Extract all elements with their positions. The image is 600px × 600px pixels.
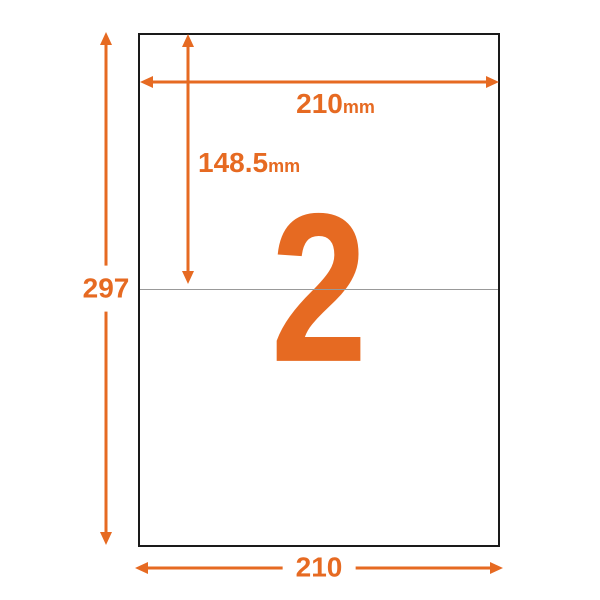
dim-bottom-width-label: 210 (283, 553, 356, 584)
dim-value: 297 (83, 272, 130, 303)
diagram-canvas: 2 297 210mm 148.5mm 210 (0, 0, 600, 600)
arrowhead-left-icon (140, 76, 153, 88)
arrowhead-down-icon (182, 271, 194, 284)
dim-value: 148.5 (198, 147, 268, 178)
label-count: 2 (172, 182, 466, 394)
dim-total-height-label: 297 (80, 265, 133, 312)
arrowhead-right-icon (486, 76, 499, 88)
dimension-line (151, 81, 488, 84)
arrowhead-up-icon (182, 34, 194, 47)
dim-value: 210 (296, 88, 343, 119)
dim-top-width-label: 210mm (296, 89, 375, 120)
dim-unit: mm (268, 156, 300, 176)
dim-unit: mm (343, 97, 375, 117)
dim-value: 210 (296, 552, 343, 583)
arrowhead-right-icon (490, 562, 503, 574)
arrowhead-up-icon (100, 32, 112, 45)
arrowhead-down-icon (100, 532, 112, 545)
dim-total-height: 297 (99, 32, 113, 545)
dim-half-height-label: 148.5mm (198, 148, 300, 179)
divider-line (140, 289, 498, 290)
dim-bottom-width: 210 (135, 560, 503, 576)
dim-half-height: 148.5mm (181, 34, 195, 284)
arrowhead-left-icon (135, 562, 148, 574)
dimension-line (187, 45, 190, 273)
